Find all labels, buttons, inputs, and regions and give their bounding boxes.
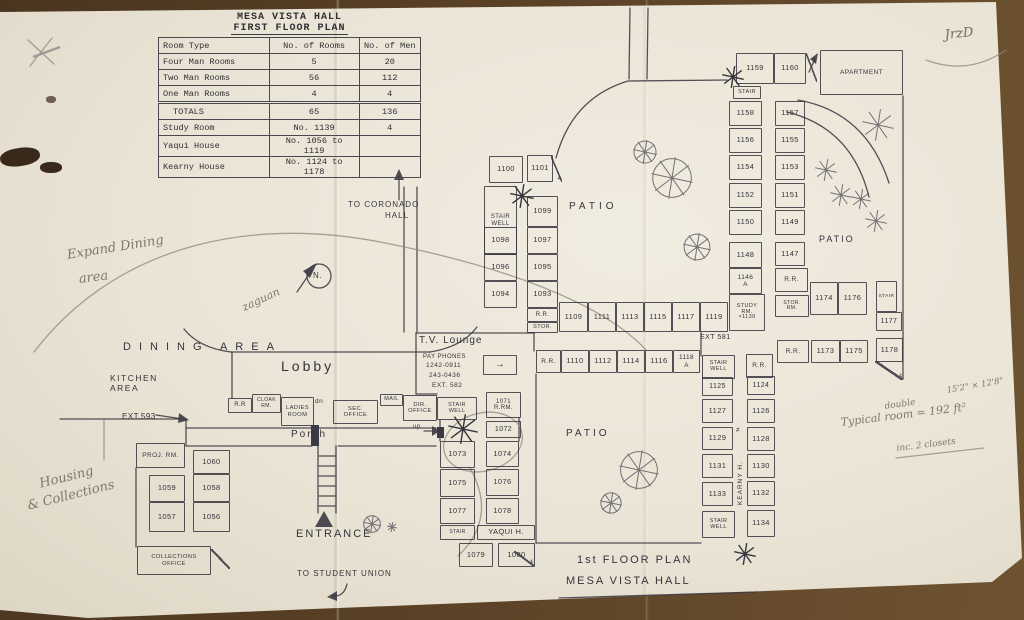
room-1100: 1100 bbox=[489, 156, 523, 183]
table-cell: 65 bbox=[269, 103, 359, 120]
plan-label: dn bbox=[315, 398, 323, 405]
plan-label: HALL bbox=[385, 211, 409, 220]
room-1127: 1127 bbox=[702, 399, 733, 423]
room-1060: 1060 bbox=[193, 450, 230, 474]
room-1079: 1079 bbox=[459, 543, 493, 567]
room-1150: 1150 bbox=[729, 210, 762, 235]
plan-label: KITCHEN AREA bbox=[110, 374, 158, 394]
pencil-note: area bbox=[78, 268, 109, 286]
room-1153: 1153 bbox=[775, 155, 805, 180]
plan-label: TO CORONADO bbox=[348, 200, 419, 209]
room-1160: 1160 bbox=[774, 53, 806, 84]
table-cell bbox=[359, 136, 421, 157]
room-1075: 1075 bbox=[440, 469, 475, 497]
plan-label: TO STUDENT UNION bbox=[297, 569, 392, 578]
room-r-r: R.R. bbox=[775, 268, 808, 292]
table-row: Room TypeNo. of RoomsNo. of Men bbox=[159, 38, 421, 54]
room-1078: 1078 bbox=[486, 498, 519, 524]
room-1132: 1132 bbox=[747, 481, 775, 506]
table-cell: 20 bbox=[359, 54, 421, 70]
plan-label: ≠ bbox=[736, 427, 740, 435]
plan-label: T.V. Lounge bbox=[419, 335, 482, 347]
room-1148: 1148 bbox=[729, 242, 762, 268]
room-1112: 1112 bbox=[589, 350, 617, 373]
room-1077: 1077 bbox=[440, 498, 475, 524]
room-1128: 1128 bbox=[747, 427, 775, 451]
table-cell: Kearny House bbox=[159, 157, 270, 178]
room-stair: STAIR bbox=[876, 281, 897, 312]
room-stor: STOR. RM. bbox=[775, 295, 809, 317]
room-1149: 1149 bbox=[775, 210, 805, 235]
room-1059: 1059 bbox=[149, 475, 185, 502]
table-cell: Two Man Rooms bbox=[159, 70, 270, 86]
room-1159: 1159 bbox=[736, 53, 774, 84]
table-row: One Man Rooms44 bbox=[159, 86, 421, 103]
room-1173: 1173 bbox=[811, 340, 840, 363]
pencil-note: zaguan bbox=[240, 285, 282, 314]
room-r-r: R.R. bbox=[746, 354, 773, 378]
diagonal-corner: 4 bbox=[514, 551, 534, 566]
table-cell: 4 bbox=[269, 86, 359, 103]
room-yaqui-h: YAQUI H. bbox=[477, 525, 535, 540]
room-1156: 1156 bbox=[729, 128, 762, 153]
room-1178: 1178 bbox=[876, 338, 903, 362]
room-r-r: R.R bbox=[228, 398, 252, 413]
plan-label: EXT. 582 bbox=[432, 382, 462, 389]
table-cell: Four Man Rooms bbox=[159, 54, 270, 70]
plan-label: DINING AREA bbox=[123, 341, 282, 354]
plan-label: EXT.593 bbox=[122, 412, 156, 421]
plan-label: KEARNY H. bbox=[737, 461, 744, 505]
summary-table: Room TypeNo. of RoomsNo. of MenFour Man … bbox=[158, 37, 421, 178]
room-r-r: R.R. bbox=[777, 340, 809, 363]
plan-label: PATIO bbox=[569, 201, 618, 213]
pencil-note: JrzD bbox=[944, 25, 974, 43]
plan-label: up bbox=[413, 424, 421, 431]
table-cell: Room Type bbox=[159, 38, 270, 54]
room-1110: 1110 bbox=[561, 350, 589, 373]
plan-label: 1st FLOOR PLAN bbox=[577, 554, 692, 567]
room-1111: 1111 bbox=[588, 302, 616, 332]
room-1131: 1131 bbox=[702, 454, 733, 478]
room-study: STUDY RM. ×1139 bbox=[729, 294, 765, 331]
table-cell: No. 1056 to 1119 bbox=[269, 136, 359, 157]
room-1116: 1116 bbox=[645, 350, 673, 373]
room-1174: 1174 bbox=[810, 282, 838, 315]
plan-label: PATIO bbox=[819, 234, 855, 244]
room-1130: 1130 bbox=[747, 454, 775, 478]
table-cell: No. of Men bbox=[359, 38, 421, 54]
room-1113: 1113 bbox=[616, 302, 644, 332]
capacity-note: 4 bbox=[899, 374, 902, 380]
room-1094: 1094 bbox=[484, 281, 517, 308]
table-row: Four Man Rooms520 bbox=[159, 54, 421, 70]
room-stor: STOR. bbox=[527, 322, 558, 333]
room-cloak: CLOAK RM. bbox=[252, 394, 281, 413]
table-cell: No. 1139 bbox=[269, 120, 359, 136]
room-summary-table: MESA VISTA HALL FIRST FLOOR PLAN Room Ty… bbox=[158, 12, 421, 178]
room-1154: 1154 bbox=[729, 155, 762, 180]
table-cell bbox=[359, 157, 421, 178]
room-proj-rm: PROJ. RM. bbox=[136, 443, 185, 468]
diagonal-corner: 4 bbox=[551, 156, 562, 182]
room-1155: 1155 bbox=[775, 128, 805, 153]
table-cell: 5 bbox=[269, 54, 359, 70]
table-row: Kearny HouseNo. 1124 to 1178 bbox=[159, 157, 421, 178]
room-1096: 1096 bbox=[484, 254, 517, 281]
room-1152: 1152 bbox=[729, 183, 762, 208]
table-title: MESA VISTA HALL bbox=[158, 12, 421, 23]
room-1151: 1151 bbox=[775, 183, 805, 208]
room-1133: 1133 bbox=[702, 482, 733, 506]
room-r-r: R.R. bbox=[536, 350, 561, 373]
capacity-note: 4 bbox=[530, 560, 533, 566]
room-1072: 1072 bbox=[486, 421, 521, 438]
room-1124: 1124 bbox=[747, 376, 775, 395]
room-1097: 1097 bbox=[527, 227, 558, 254]
room-1129: 1129 bbox=[702, 427, 733, 450]
room-stair: STAIR WELL bbox=[437, 397, 477, 420]
table-row: Two Man Rooms56112 bbox=[159, 70, 421, 86]
room-: → bbox=[483, 355, 517, 375]
room-1158: 1158 bbox=[729, 101, 762, 126]
room-1177: 1177 bbox=[876, 312, 902, 331]
room-1099: 1099 bbox=[527, 196, 558, 227]
table-cell: No. 1124 to 1178 bbox=[269, 157, 359, 178]
table-cell: No. of Rooms bbox=[269, 38, 359, 54]
room-dir: DIR. OFFICE bbox=[403, 395, 437, 421]
door-mark bbox=[437, 427, 444, 438]
plan-label: 1242-0911 bbox=[426, 362, 461, 369]
plan-label: PATIO bbox=[566, 428, 610, 440]
table-cell: One Man Rooms bbox=[159, 86, 270, 103]
plan-label: ENTRANCE bbox=[296, 528, 373, 541]
room-mail: MAIL bbox=[380, 394, 403, 406]
table-cell: Yaqui House bbox=[159, 136, 270, 157]
plan-label: EXT 581 bbox=[700, 334, 731, 342]
pencil-note: inc. 2 closets bbox=[896, 437, 956, 454]
room-1146: 1146 A bbox=[729, 268, 762, 294]
plan-label: MESA VISTA HALL bbox=[566, 575, 691, 588]
table-cell: 136 bbox=[359, 103, 421, 120]
room-1056: 1056 bbox=[193, 502, 230, 532]
room-1058: 1058 bbox=[193, 474, 230, 502]
table-cell: 4 bbox=[359, 120, 421, 136]
room-1119: 1119 bbox=[700, 302, 728, 332]
room-1093: 1093 bbox=[527, 281, 558, 308]
room-1125: 1125 bbox=[702, 377, 733, 396]
room-stair: STAIR WELL bbox=[702, 511, 735, 538]
diagonal-corner: 4 bbox=[875, 361, 903, 380]
room-stair: STAIR bbox=[733, 86, 761, 99]
room-1101: 1101 bbox=[527, 155, 553, 182]
table-cell: 56 bbox=[269, 70, 359, 86]
room-1118: 1118 A bbox=[673, 350, 700, 373]
room-1057: 1057 bbox=[149, 502, 185, 532]
room-r-r: R.R. bbox=[527, 308, 558, 322]
plan-label: Lobby bbox=[281, 358, 334, 374]
room-1117: 1117 bbox=[672, 302, 700, 332]
room-1071: 1071 R.RM. bbox=[486, 392, 521, 418]
table-cell: 112 bbox=[359, 70, 421, 86]
diagonal-corner bbox=[806, 53, 817, 82]
room-apartment: APARTMENT bbox=[820, 50, 903, 95]
room-collections: COLLECTIONS OFFICE bbox=[137, 546, 211, 575]
room-1175: 1175 bbox=[840, 340, 868, 363]
pencil-note: 15'2" × 12'8" bbox=[946, 376, 1004, 396]
room-1176: 1176 bbox=[838, 282, 867, 315]
room-1095: 1095 bbox=[527, 254, 558, 281]
diagonal-corner bbox=[211, 549, 230, 569]
table-cell: 4 bbox=[359, 86, 421, 103]
table-subtitle: FIRST FLOOR PLAN bbox=[231, 23, 347, 35]
table-row: Study RoomNo. 11394 bbox=[159, 120, 421, 136]
room-stair: STAIR bbox=[440, 525, 475, 540]
room-1098: 1098 bbox=[484, 227, 517, 254]
scanned-floorplan-photo: 11001101STAIR WELL1099109810971096109510… bbox=[0, 0, 1024, 620]
room-sec: SEC. OFFICE bbox=[333, 400, 378, 424]
room-1157: 1157 bbox=[775, 101, 805, 126]
room-stair: STAIR WELL bbox=[702, 355, 735, 379]
table-row: TOTALS65136 bbox=[159, 103, 421, 120]
room-1147: 1147 bbox=[775, 242, 805, 266]
plan-label: Porch bbox=[291, 429, 327, 441]
room-1114: 1114 bbox=[617, 350, 645, 373]
capacity-note: 4 bbox=[558, 176, 561, 182]
pencil-note: Expand Dining bbox=[66, 233, 165, 263]
plan-label: N. bbox=[313, 271, 322, 280]
room-1115: 1115 bbox=[644, 302, 672, 332]
room-1073: 1073 bbox=[440, 441, 475, 468]
room-1126: 1126 bbox=[747, 399, 775, 423]
room-1076: 1076 bbox=[486, 469, 519, 496]
floorplan-rooms-layer: 11001101STAIR WELL1099109810971096109510… bbox=[0, 0, 1024, 620]
room-1134: 1134 bbox=[747, 510, 775, 537]
table-row: Yaqui HouseNo. 1056 to 1119 bbox=[159, 136, 421, 157]
plan-label: 243-0436 bbox=[429, 372, 460, 379]
room-1074: 1074 bbox=[486, 441, 519, 467]
table-cell: Study Room bbox=[159, 120, 270, 136]
room-1109: 1109 bbox=[559, 302, 588, 332]
room-ladies: LADIES ROOM bbox=[281, 397, 314, 426]
plan-label: PAY PHONES bbox=[423, 354, 466, 361]
table-cell: TOTALS bbox=[159, 103, 270, 120]
